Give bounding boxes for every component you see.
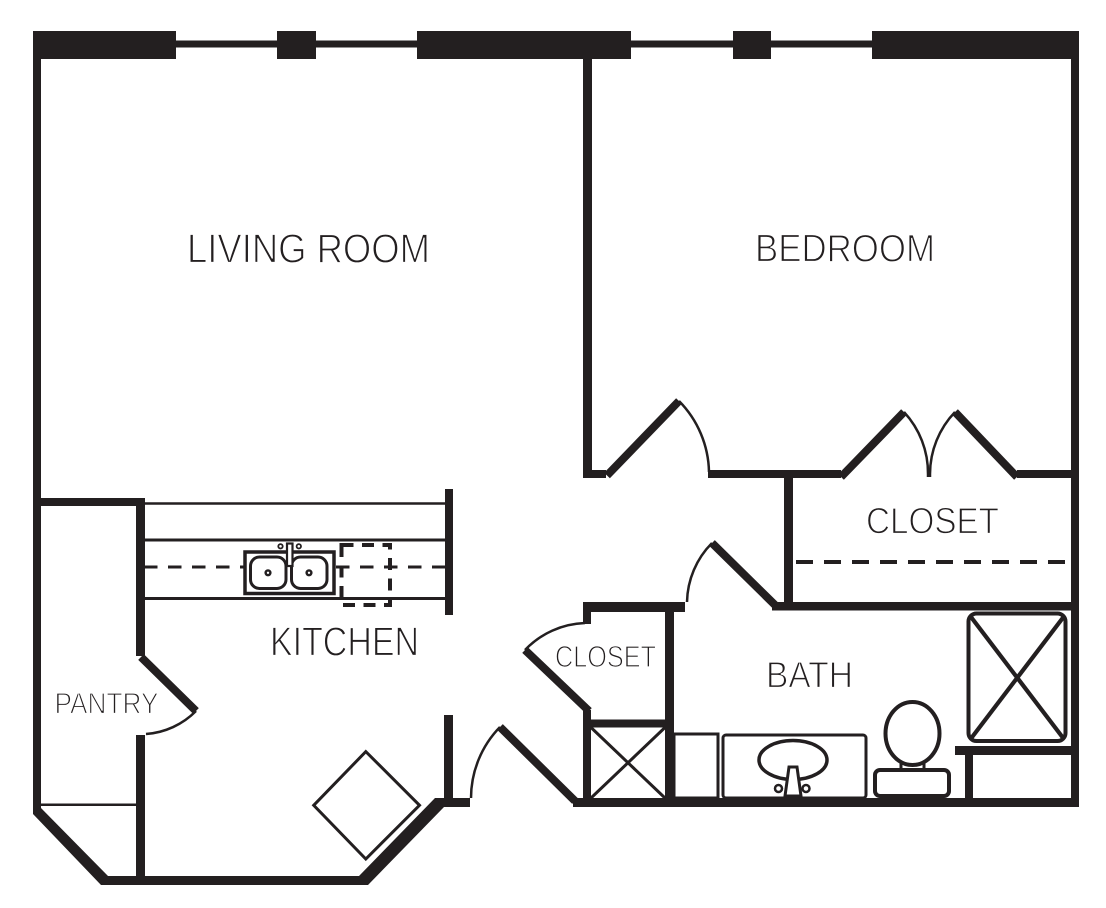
svg-text:CLOSET: CLOSET [866,500,999,542]
svg-text:LIVING ROOM: LIVING ROOM [187,226,430,272]
svg-text:KITCHEN: KITCHEN [270,619,419,665]
svg-text:PANTRY: PANTRY [55,688,159,721]
svg-text:BATH: BATH [766,654,853,696]
svg-text:CLOSET: CLOSET [555,640,656,674]
svg-text:BEDROOM: BEDROOM [755,228,935,271]
